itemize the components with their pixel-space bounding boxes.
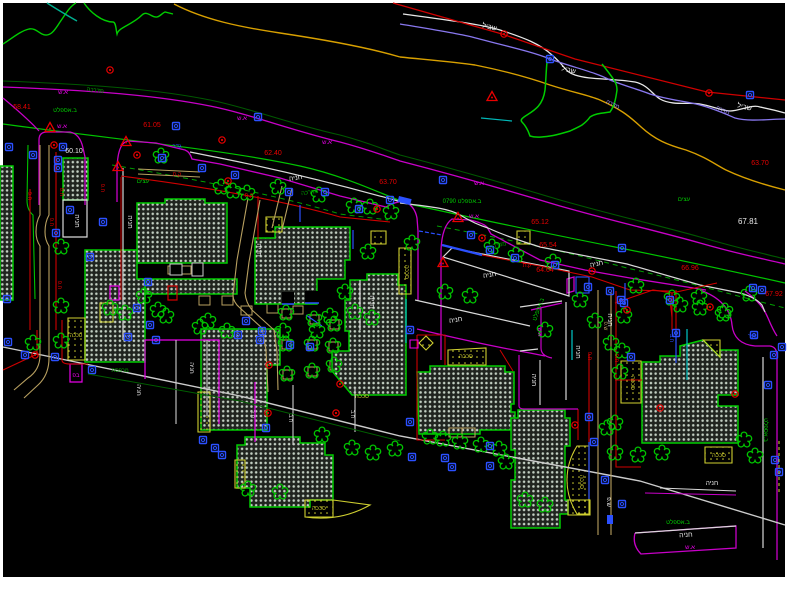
svg-text:ח.ב: ח.ב [249, 410, 255, 419]
svg-text:67.92: 67.92 [765, 291, 783, 298]
svg-text:חניה: חניה [73, 214, 80, 228]
svg-text:ק.ת: ק.ת [245, 193, 254, 199]
svg-text:ח.פ: ח.פ [613, 354, 619, 363]
svg-text:א.ש: א.ש [322, 140, 332, 146]
svg-text:ח.ב: ח.ב [287, 414, 293, 423]
svg-text:א.ש: א.ש [57, 124, 67, 130]
svg-text:64.64: 64.64 [536, 267, 554, 274]
svg-text:סככה: סככה [355, 394, 369, 400]
svg-text:63.70: 63.70 [379, 179, 397, 186]
svg-text:ח.פ: ח.פ [48, 218, 54, 227]
svg-text:סככה: סככה [578, 475, 584, 489]
svg-text:ב.אספלט: ב.אספלט [762, 418, 770, 442]
svg-text:ח.ב: ח.ב [668, 334, 674, 343]
svg-text:מרפסת: מרפסת [111, 368, 128, 374]
svg-text:ח.פ: ח.פ [56, 281, 62, 290]
svg-text:סככה: סככה [712, 453, 726, 459]
svg-text:ש.פ: ש.פ [605, 497, 611, 507]
svg-text:ק.ת: ק.ת [173, 172, 182, 178]
svg-text:חניה: חניה [368, 295, 375, 309]
svg-text:בפ: בפ [72, 373, 80, 379]
svg-text:ח.פ: ח.פ [586, 352, 592, 361]
svg-text:חניה: חניה [126, 215, 133, 229]
svg-text:א.ש: א.ש [58, 90, 68, 96]
svg-text:עצים: עצים [678, 197, 691, 203]
svg-text:חניה: חניה [530, 374, 537, 387]
svg-text:שער: שער [748, 334, 758, 340]
svg-text:67.81: 67.81 [738, 217, 759, 226]
svg-text:61.05: 61.05 [143, 122, 161, 129]
svg-text:ב.אספלט 0790: ב.אספלט 0790 [443, 197, 482, 205]
svg-text:סככה: סככה [70, 333, 83, 339]
svg-text:א.ש: א.ש [474, 181, 484, 187]
svg-text:סככה: סככה [629, 376, 635, 390]
svg-text:ח.ב: ח.ב [349, 410, 355, 419]
svg-text:עצים: עצים [137, 179, 150, 185]
svg-text:ב.אספלט: ב.אספלט [53, 106, 77, 114]
svg-text:ש.פ: ש.פ [602, 322, 608, 331]
svg-text:ח.פ: ח.פ [58, 188, 64, 197]
svg-text:חניה: חניה [706, 480, 719, 487]
svg-text:ק.ת: ק.ת [523, 263, 532, 269]
svg-text:60.10: 60.10 [65, 148, 83, 155]
svg-text:חניה: חניה [135, 384, 141, 396]
svg-text:חניה: חניה [679, 532, 693, 540]
svg-text:גדר: גדר [172, 144, 182, 150]
svg-text:א.ש: א.ש [237, 116, 247, 122]
svg-text:סככה: סככה [403, 265, 409, 279]
svg-text:חניה: חניה [574, 345, 581, 359]
svg-text:65.12: 65.12 [531, 219, 549, 226]
svg-text:ח.פ: ח.פ [26, 192, 32, 201]
svg-text:ח.פ: ח.פ [99, 184, 105, 193]
svg-text:65.54: 65.54 [539, 242, 557, 249]
svg-text:62.40: 62.40 [264, 150, 282, 157]
svg-text:א.ש: א.ש [536, 328, 542, 338]
svg-text:א.ש: א.ש [685, 545, 695, 551]
svg-text:א.ש: א.ש [469, 214, 479, 220]
svg-text:66.96: 66.96 [681, 265, 699, 272]
svg-text:58.41: 58.41 [13, 104, 31, 111]
svg-text:סככה: סככה [312, 506, 326, 512]
svg-text:חניה: חניה [255, 243, 262, 257]
svg-text:חניה: חניה [188, 362, 194, 374]
svg-text:63.70: 63.70 [751, 160, 769, 167]
svg-text:ב.אספלט: ב.אספלט [666, 518, 690, 526]
svg-text:סככה: סככה [459, 354, 473, 360]
